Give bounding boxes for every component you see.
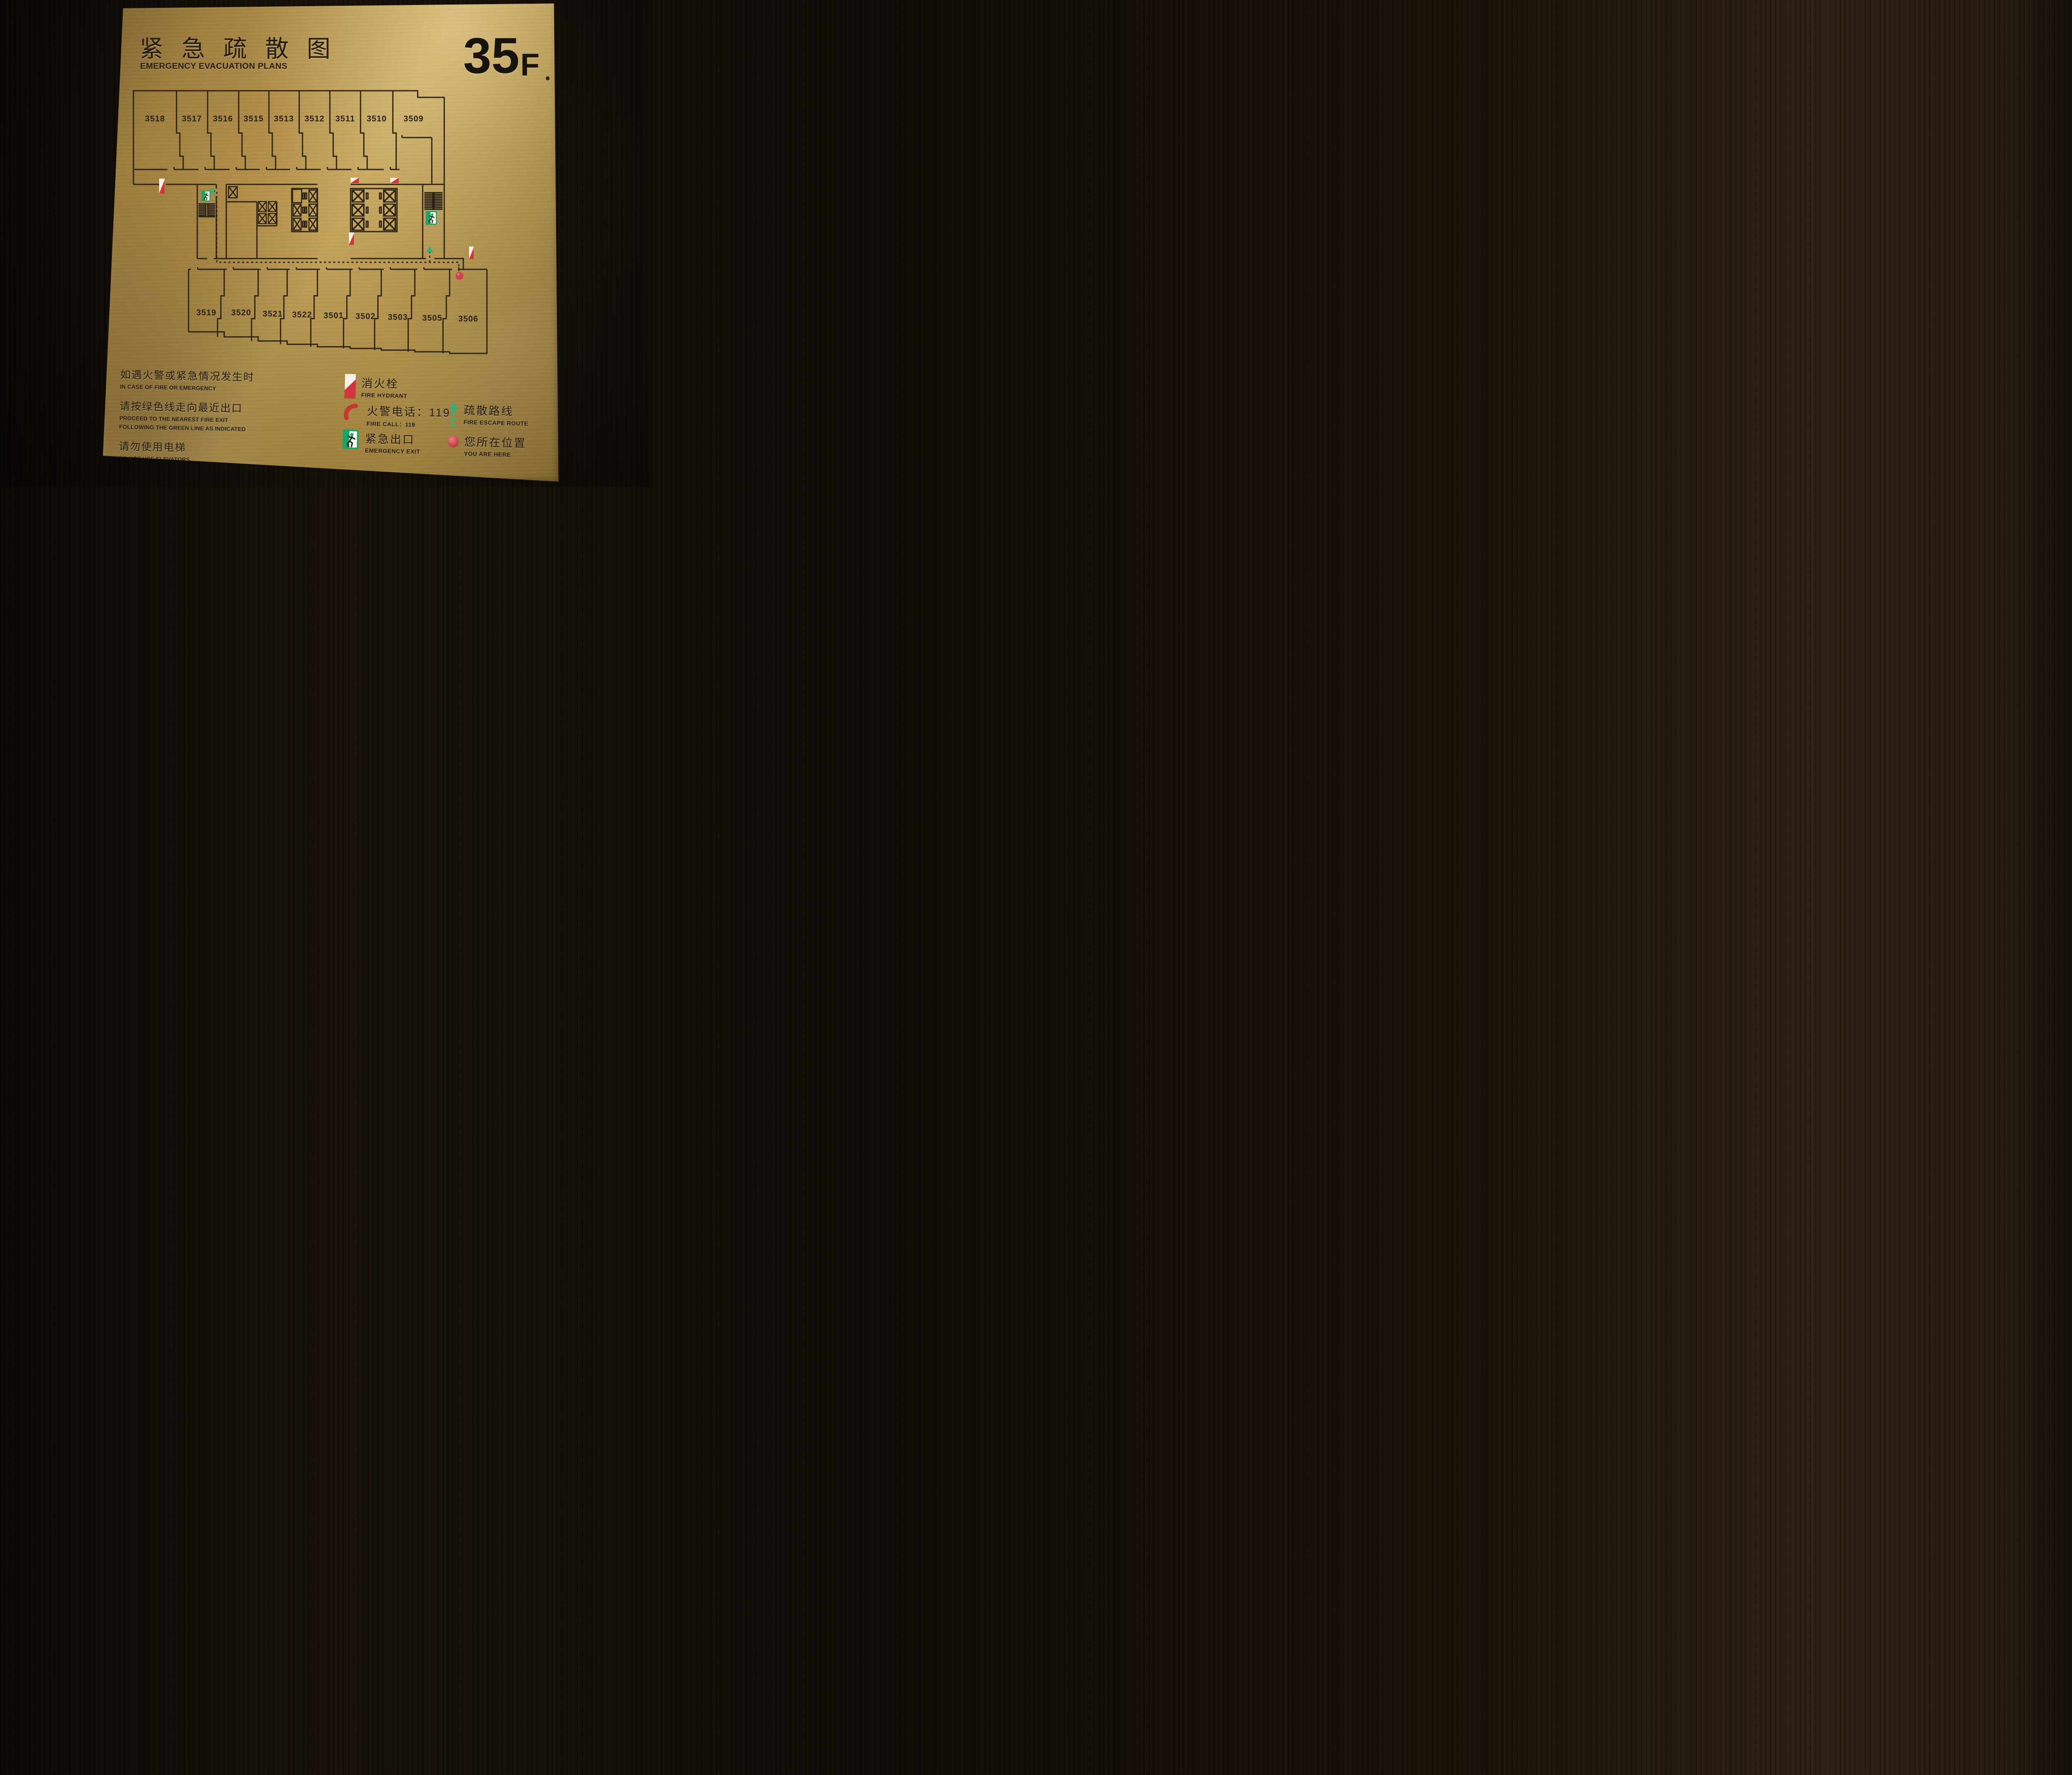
instruction-cn: 请勿使用电梯 [119,438,260,456]
service-elevator-icon [268,213,276,223]
exit-sign-right-icon [426,211,437,225]
instruction-en: DO NOT USE ELEVATORS [119,454,259,465]
elevator-icon [309,218,317,230]
legend-label-cn: 疏散路线 [464,401,529,419]
elevator-icon [352,190,364,202]
bottom-band-corridor-wall [189,267,487,269]
elevator-icon [384,204,395,216]
route-arrow-up [426,247,433,252]
service-elevator-icon [258,201,266,211]
fire-hydrant-marker [390,178,399,183]
instruction-cn: 请按绿色线走向最近出口 [119,398,261,416]
page-title-english: EMERGENCY EVACUATION PLANS [140,61,288,71]
room-label: 3503 [388,313,408,322]
elevator-icon [352,204,364,216]
room-label: 3522 [292,310,312,319]
instruction-follow-green-line: 请按绿色线走向最近出口 PROCEED TO THE NEAREST FIRE … [119,398,260,434]
room-label: 3515 [244,114,264,123]
fire-call-phone-icon [342,401,361,422]
room-label: 3516 [213,114,233,123]
legend-label-en: FIRE CALL：119 [366,420,450,430]
room-label: 3505 [422,314,443,323]
elevator-doors-right-bank [366,193,381,227]
room-label: 3513 [274,114,294,123]
instruction-en: PROCEED TO THE NEAREST FIRE EXIT FOLLOWI… [119,414,260,434]
top-room-dividers [177,91,396,169]
escape-route-arrow-icon [448,401,458,428]
lower-corridor-wall [226,259,463,269]
elevator-icon [384,190,395,202]
legend-label-en: YOU ARE HERE [464,450,526,459]
room-label: 3510 [367,114,387,123]
fire-hydrant-icon [344,374,356,398]
elevator-icon [384,218,395,230]
room-label: 3509 [404,114,424,123]
legend-fire-hydrant: 消火栓 FIRE HYDRANT [344,374,408,399]
legend-label-cn: 您所在位置 [464,433,527,451]
room-label: 3512 [305,114,325,123]
page-title-chinese: 紧 急 疏 散 图 [140,30,336,64]
service-elevator-icon [268,201,276,211]
legend-emergency-exit: 紧急出口 EMERGENCY EXIT [341,429,421,455]
elevator-icon [293,218,301,230]
room-label: 3502 [356,312,376,321]
service-elevator-icon [258,213,266,223]
legend-label-cn: 紧急出口 [365,430,421,447]
right-stairs-treads [424,193,443,209]
floor-indicator: 35 F [459,23,540,78]
room-label: 3521 [263,310,283,319]
legend-fire-call: 火警电话：119 FIRE CALL：119 [341,401,450,429]
instruction-cn: 如遇火警或紧急情况发生时 [120,367,261,385]
mounting-dot [546,76,549,80]
top-band-corridor-wall [134,167,399,169]
left-stairs-treads [198,204,215,217]
room-3509-wall [402,135,432,184]
fire-hydrant-marker [469,247,474,259]
instruction-en: IN CASE OF FIRE OR EMERGENCY [120,383,261,394]
evacuation-plan-plaque: 紧 急 疏 散 图 EMERGENCY EVACUATION PLANS 35 … [102,2,559,483]
legend-label-en: FIRE ESCAPE ROUTE [463,419,528,427]
floor-suffix: F [520,52,540,78]
service-elevator-icon [229,187,237,198]
fire-hydrant-marker [351,178,359,183]
legend-label-en: FIRE HYDRANT [361,392,407,399]
elevator-icon [293,204,301,216]
exit-sign-left-icon [201,191,210,201]
legend-label-en: EMERGENCY EXIT [365,447,420,455]
escape-route-line [213,191,459,273]
you-are-here-icon [448,436,459,447]
fire-hydrant-marker [349,232,354,245]
elevator-cell-blank [293,189,302,203]
room-label: 3519 [196,308,217,317]
plaque-content: 紧 急 疏 散 图 EMERGENCY EVACUATION PLANS 35 … [123,8,558,481]
legend-label-cn: 消火栓 [361,374,408,391]
room-label: 3501 [324,311,344,320]
room-label: 3506 [458,314,479,324]
room-label: 3520 [231,308,252,317]
room-label: 3518 [145,114,165,123]
legend-you-are-here: 您所在位置 YOU ARE HERE [448,433,526,459]
photo-of-evacuation-sign: { "header": { "title_cn": "紧 急 疏 散 图", "… [0,0,650,487]
room-label: 3511 [335,114,355,123]
elevator-icon [309,190,317,202]
elevator-doors-left-bank [303,193,307,227]
instruction-fire-emergency: 如遇火警或紧急情况发生时 IN CASE OF FIRE OR EMERGENC… [120,367,261,394]
floor-number: 35 [463,34,520,78]
service-area-walls [226,184,277,259]
room-label: 3517 [182,114,202,123]
elevator-icon [352,218,364,230]
instruction-no-elevators: 请勿使用电梯 DO NOT USE ELEVATORS [119,438,260,465]
emergency-exit-icon [342,429,360,450]
fire-hydrant-marker [159,179,165,193]
you-are-here-dot [456,272,464,280]
elevator-icon [309,204,317,216]
you-are-here-dot-highlight [457,273,460,276]
floor-plan-map: 3518 3517 3516 3515 3513 3512 3511 3510 … [128,87,492,360]
legend-escape-route: 疏散路线 FIRE ESCAPE ROUTE [448,401,529,430]
instructions-block: 如遇火警或紧急情况发生时 IN CASE OF FIRE OR EMERGENC… [119,367,261,472]
legend-label-cn: 火警电话：119 [367,402,451,420]
